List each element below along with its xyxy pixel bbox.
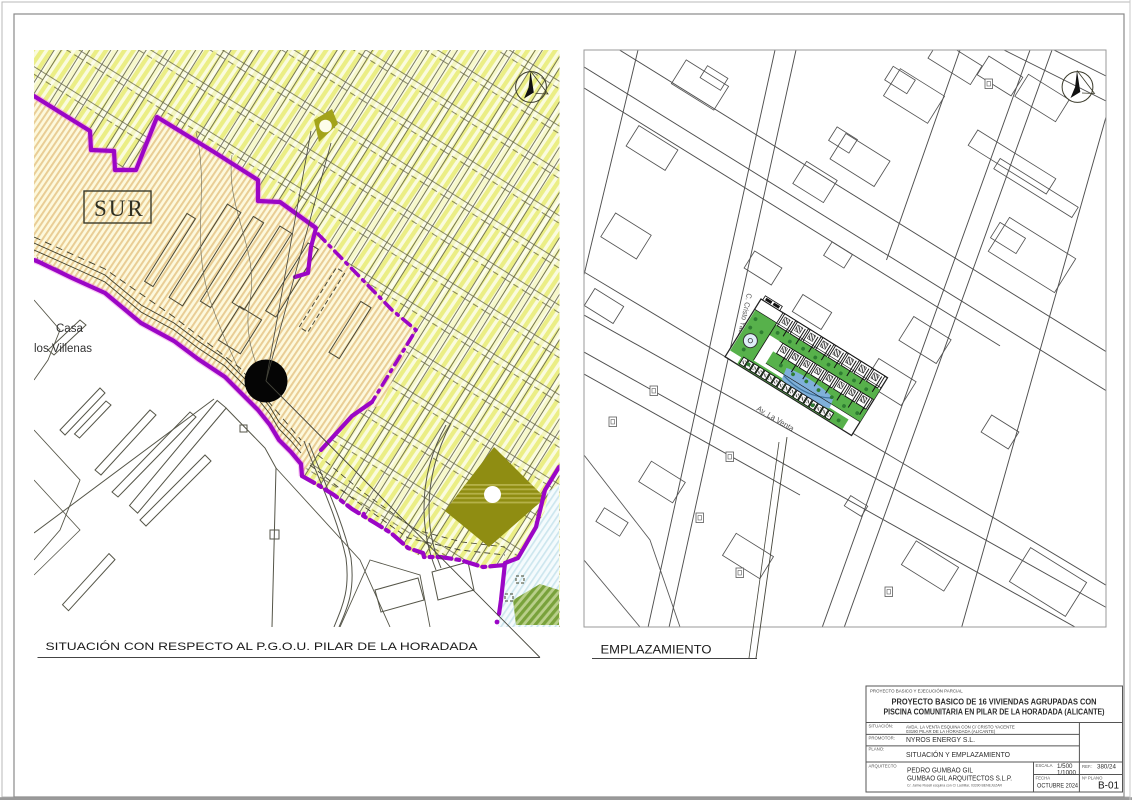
svg-text:PISCINA COMUNITARIA EN PILAR D: PISCINA COMUNITARIA EN PILAR DE LA HORAD…: [884, 708, 1105, 717]
svg-text:PLANO:: PLANO:: [869, 747, 885, 752]
svg-text:REF.:: REF.:: [1082, 764, 1093, 769]
svg-text:EMPLAZAMIENTO: EMPLAZAMIENTO: [601, 643, 712, 657]
svg-text:PROMOTOR:: PROMOTOR:: [869, 735, 895, 740]
svg-text:PROYECTO BASICO DE 16 VIVIENDA: PROYECTO BASICO DE 16 VIVIENDAS AGRUPADA…: [892, 698, 1097, 707]
svg-text:SITUACIÓN Y EMPLAZAMIENTO: SITUACIÓN Y EMPLAZAMIENTO: [906, 750, 1010, 759]
svg-text:PEDRO GUMBAO GIL: PEDRO GUMBAO GIL: [907, 768, 973, 775]
svg-text:Casa: Casa: [56, 323, 83, 335]
svg-text:SITUACIÓN CON RESPECTO AL P.G: SITUACIÓN CON RESPECTO AL P.G.O.U. PILAR…: [46, 640, 479, 653]
svg-text:C/. Jaime Rosell esquina con C: C/. Jaime Rosell esquina con C/ Ladrilla…: [907, 783, 1002, 787]
svg-text:380/24: 380/24: [1097, 764, 1116, 771]
svg-text:OCTUBRE 2024: OCTUBRE 2024: [1037, 784, 1079, 790]
svg-text:FECHA: FECHA: [1036, 775, 1051, 780]
svg-text:1/1000: 1/1000: [1057, 769, 1076, 776]
svg-text:B-01: B-01: [1098, 781, 1120, 792]
svg-text:ARQUITECTO: ARQUITECTO: [869, 763, 898, 768]
svg-text:SUR: SUR: [94, 196, 145, 221]
svg-text:los Villenas: los Villenas: [34, 343, 92, 355]
svg-text:GUMBAO GIL ARQUITECTOS S.L.P.: GUMBAO GIL ARQUITECTOS S.L.P.: [907, 776, 1012, 783]
svg-text:ESCALA: ESCALA: [1036, 763, 1053, 768]
svg-text:SITUACIÓN:: SITUACIÓN:: [869, 723, 894, 728]
svg-text:PROYECTO BASICO Y EJECUCIÓN P: PROYECTO BASICO Y EJECUCIÓN PARCIAL: [870, 688, 963, 693]
svg-text:NYROS ENERGY S.L.: NYROS ENERGY S.L.: [906, 737, 975, 744]
svg-text:03190 PILAR DE LA HORADADA (AL: 03190 PILAR DE LA HORADADA (ALICANTE): [906, 729, 996, 734]
